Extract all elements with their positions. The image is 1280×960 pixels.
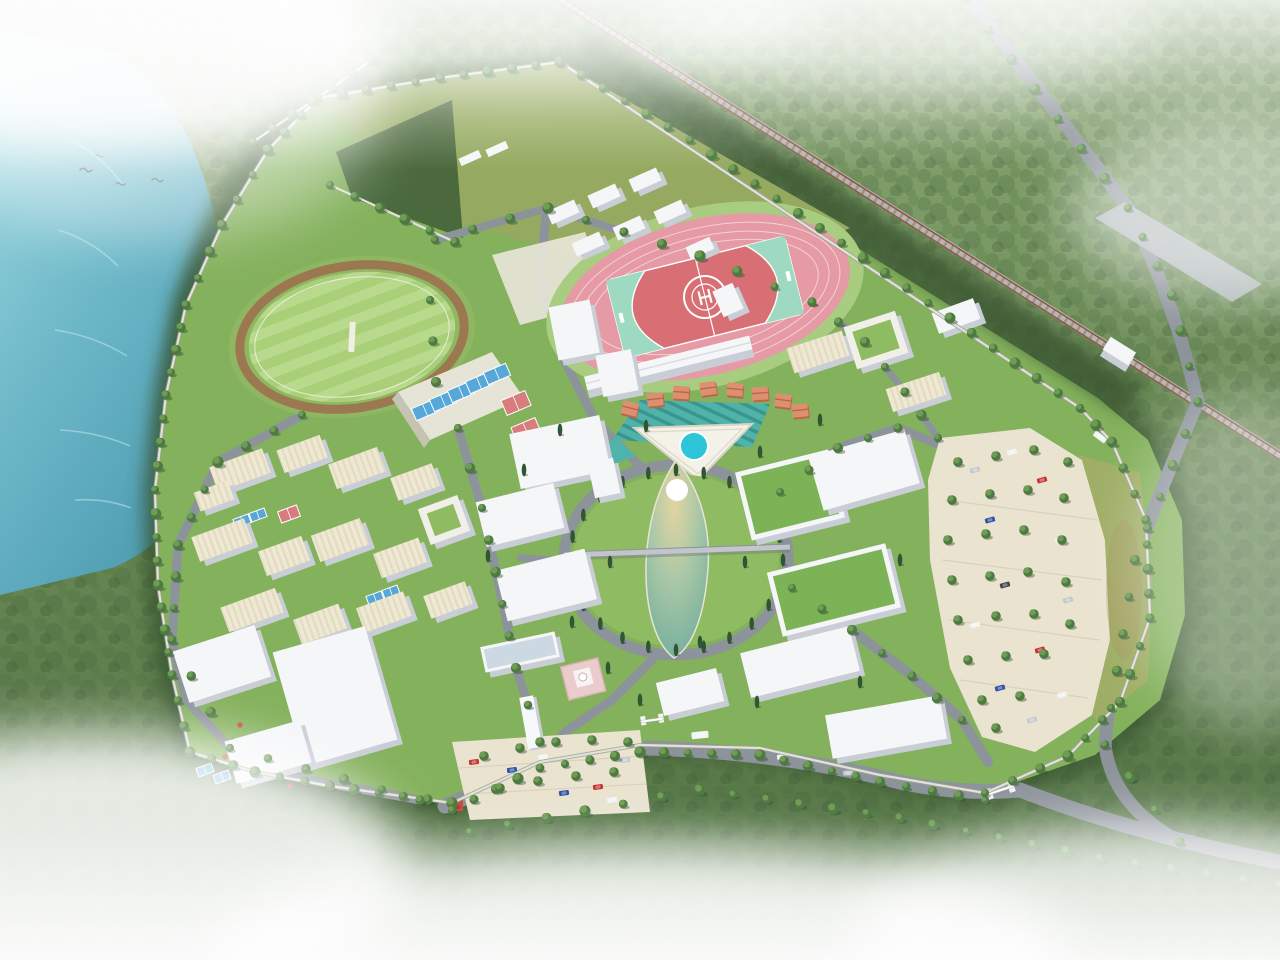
- car: [843, 770, 853, 775]
- circular-pool: [680, 432, 708, 460]
- dome-highlight: [670, 483, 678, 491]
- terracotta-pavilion: [646, 392, 664, 409]
- bus-roof: [696, 732, 705, 738]
- campus-rendering-stage: [0, 0, 1280, 960]
- bottom-haze: [0, 815, 1280, 960]
- terracotta-pavilion: [774, 393, 793, 410]
- car-roof: [845, 771, 850, 774]
- terracotta-pavilion: [791, 403, 809, 420]
- terracotta-pavilion: [726, 382, 744, 399]
- dome-pavilion: [666, 479, 688, 501]
- terracotta-pavilion: [752, 386, 770, 402]
- cafe-umbrella: [237, 722, 242, 727]
- terracotta-pavilion: [672, 385, 690, 401]
- terracotta-pavilion: [699, 381, 718, 398]
- campus-aerial-rendering: [0, 0, 1280, 960]
